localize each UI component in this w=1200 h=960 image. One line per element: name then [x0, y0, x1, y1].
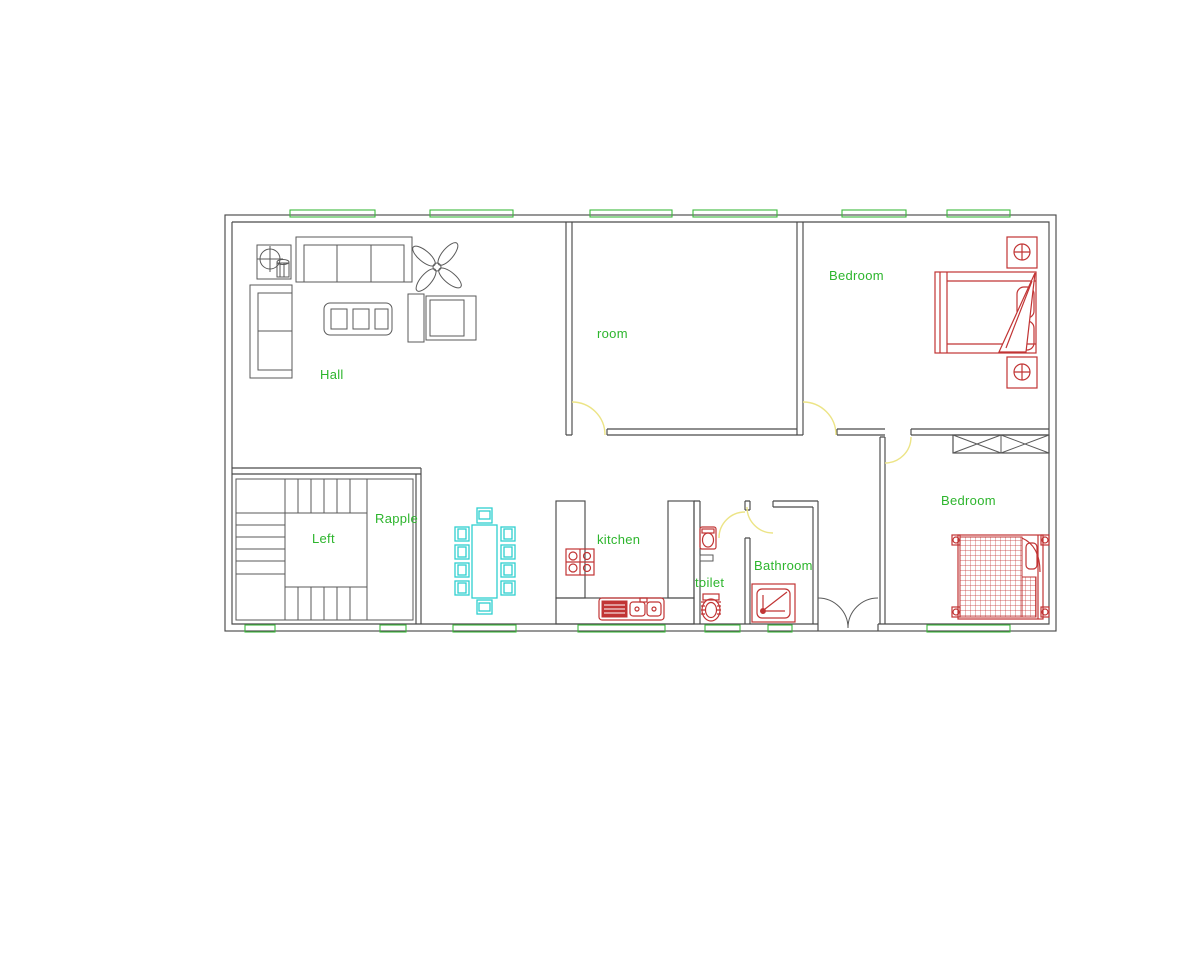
stairs-landing-label[interactable]: Left	[312, 531, 335, 546]
wash-basin[interactable]	[700, 527, 716, 549]
stove[interactable]	[566, 549, 594, 575]
double-bed[interactable]	[935, 272, 1036, 353]
bathroom-label[interactable]: Bathroom	[754, 558, 813, 573]
floor-plan-drawing	[0, 0, 1200, 960]
hall-label[interactable]: Hall	[320, 367, 344, 382]
nightstand-lamp-bottom[interactable]	[1007, 357, 1037, 388]
shelf	[700, 555, 713, 561]
toilet-label[interactable]: toilet	[695, 575, 724, 590]
double-sink[interactable]	[599, 598, 664, 620]
entrance-double-door[interactable]	[818, 598, 878, 628]
room-label[interactable]: room	[597, 326, 628, 341]
dining-table-set[interactable]	[455, 508, 515, 614]
sofa-two-seat[interactable]	[250, 285, 292, 378]
nightstand-lamp-top[interactable]	[1007, 237, 1037, 268]
single-bed[interactable]	[952, 535, 1049, 619]
ceiling-fan-icon[interactable]	[410, 240, 465, 295]
wardrobe[interactable]	[953, 435, 1049, 453]
armchair[interactable]	[426, 296, 476, 340]
exterior-walls[interactable]	[225, 215, 1056, 631]
window-markers[interactable]	[245, 210, 1010, 632]
bedroom-bottom-label[interactable]: Bedroom	[941, 493, 996, 508]
shower-tray[interactable]	[752, 584, 795, 622]
door-swings[interactable]	[572, 402, 911, 538]
stairs-side-label[interactable]: Rapple	[375, 511, 418, 526]
floor-plan-canvas: Hall room Bedroom Left Rapple kitchen to…	[0, 0, 1200, 960]
staircase[interactable]	[236, 479, 413, 620]
bedroom-top-label[interactable]: Bedroom	[829, 268, 884, 283]
corner-unit[interactable]	[257, 245, 291, 279]
sofa-three-seat[interactable]	[296, 237, 412, 282]
coffee-table[interactable]	[324, 303, 392, 335]
wc-toilet-icon[interactable]	[701, 594, 721, 621]
side-table[interactable]	[408, 294, 424, 342]
kitchen-label[interactable]: kitchen	[597, 532, 640, 547]
